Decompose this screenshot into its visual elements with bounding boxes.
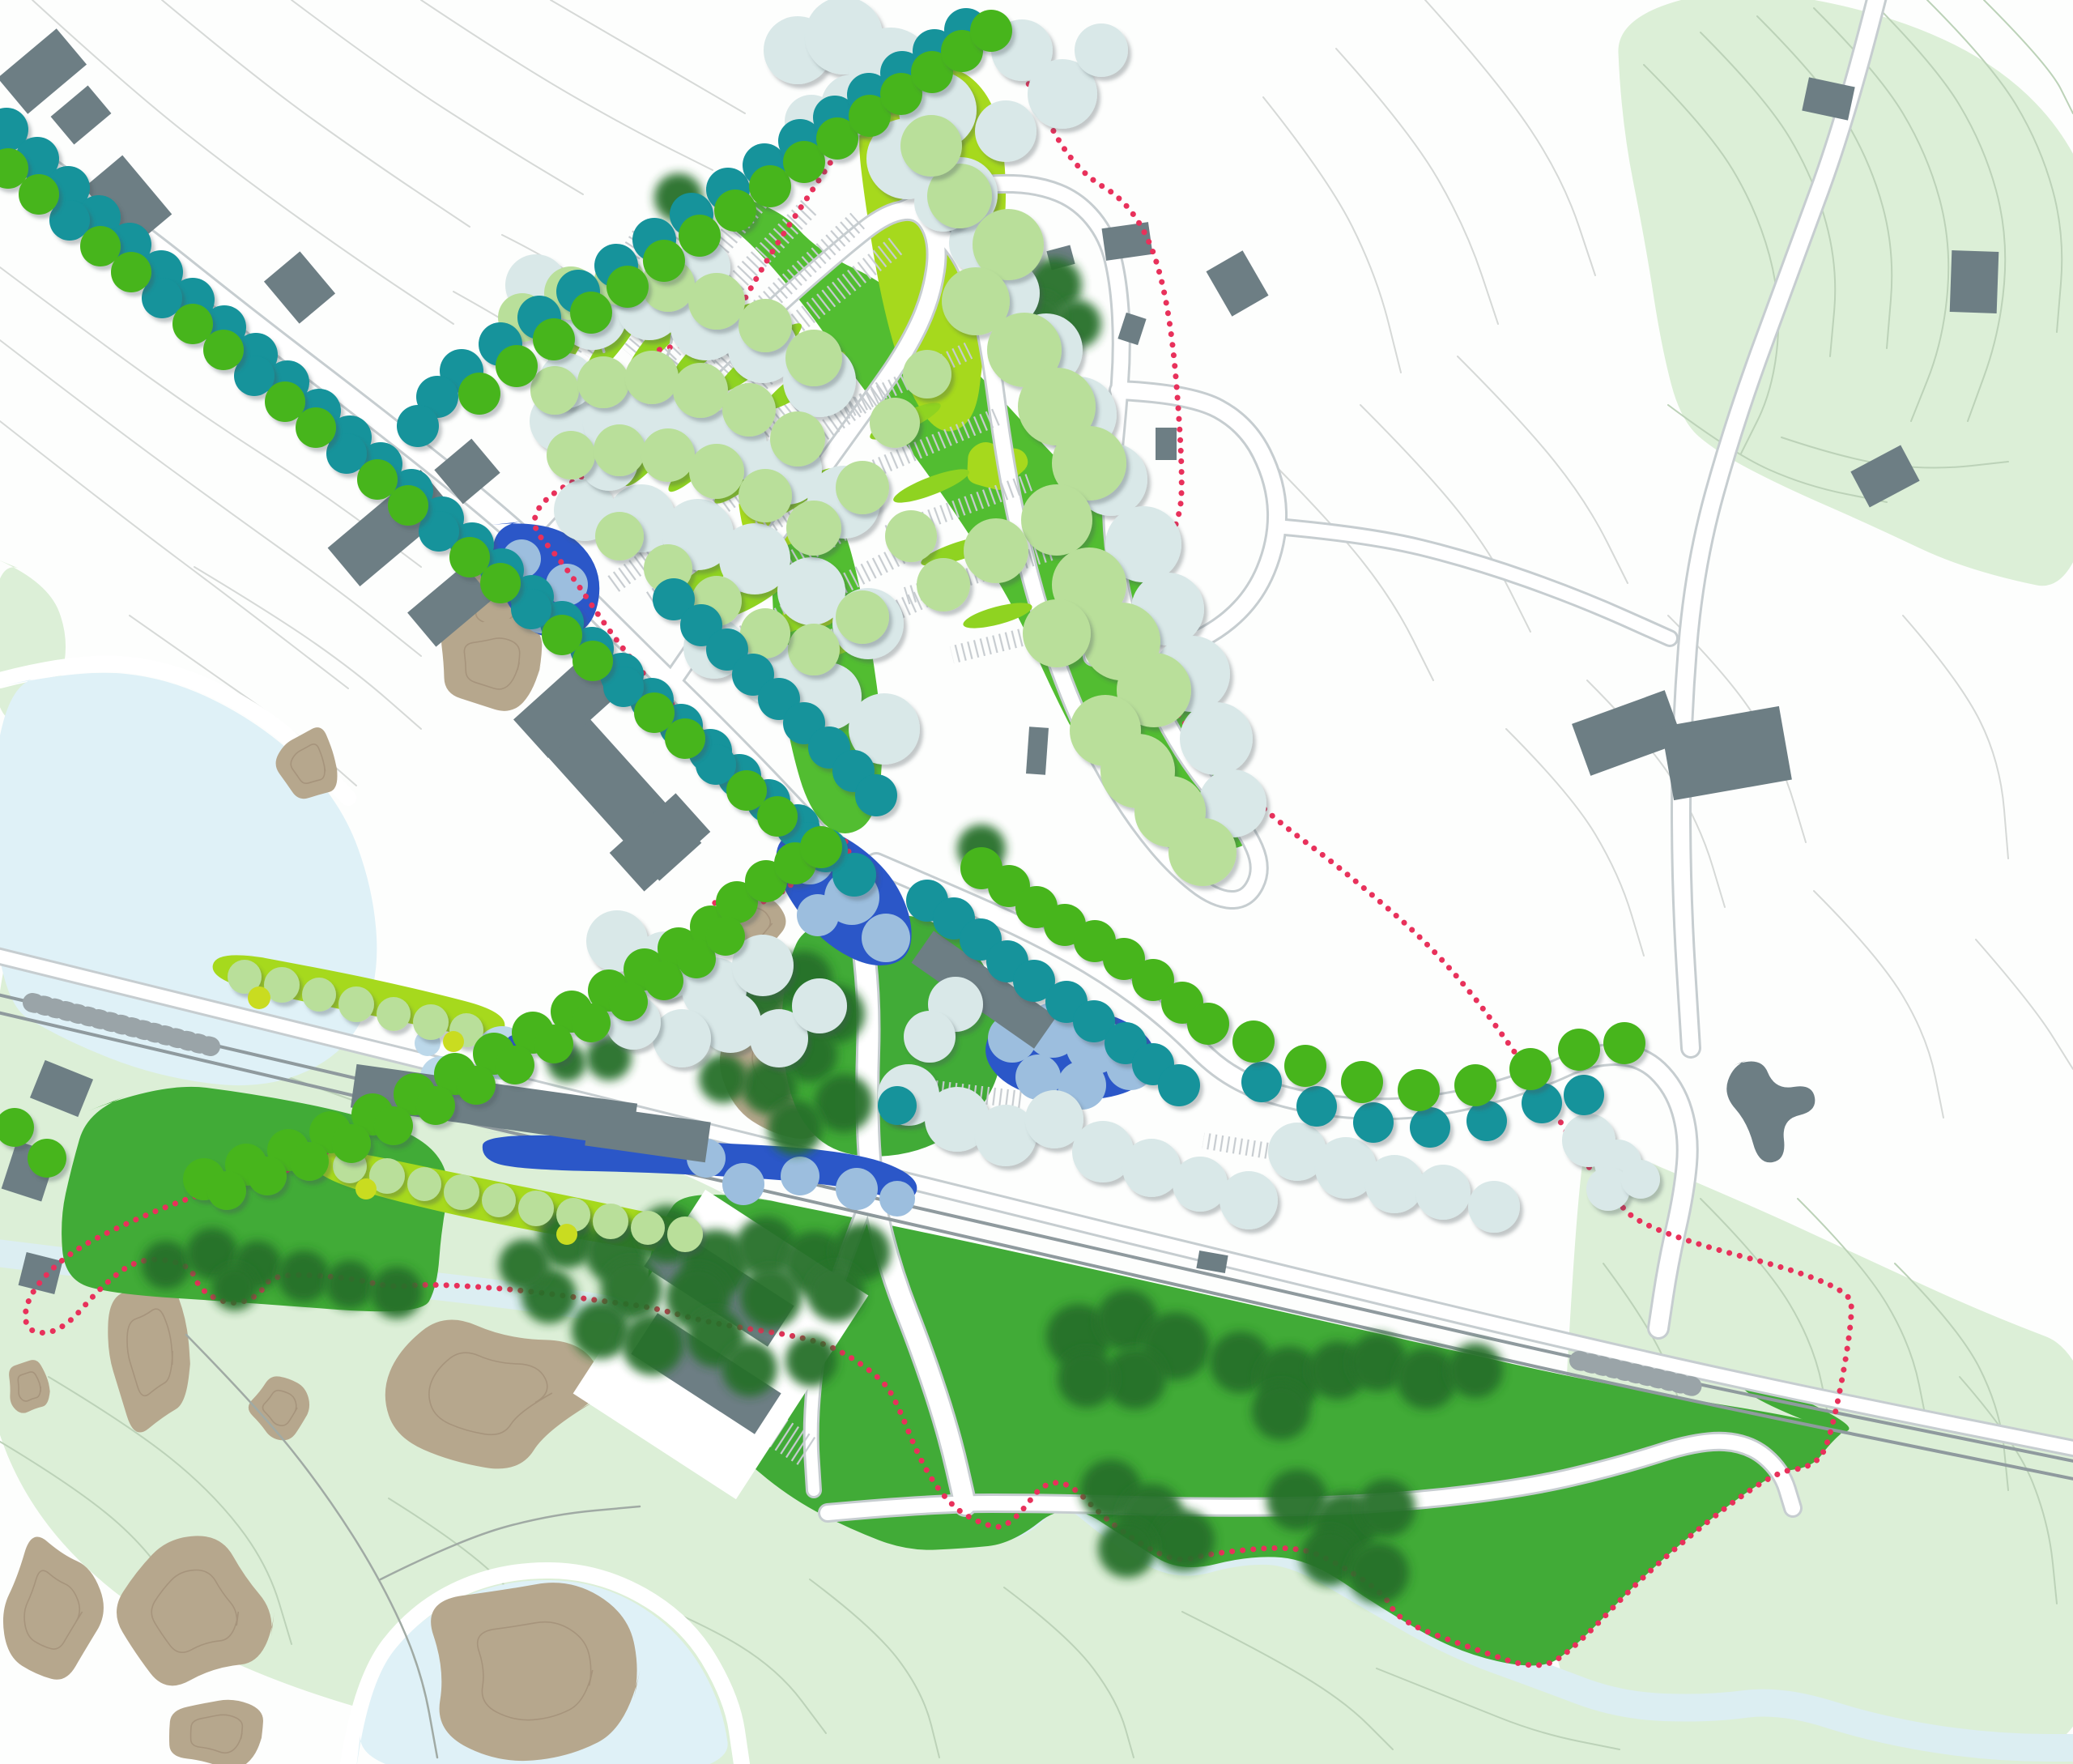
map-canvas — [0, 0, 2073, 1764]
landscape-masterplan-map — [0, 0, 2073, 1764]
layer-building-polys — [1726, 1060, 1815, 1162]
